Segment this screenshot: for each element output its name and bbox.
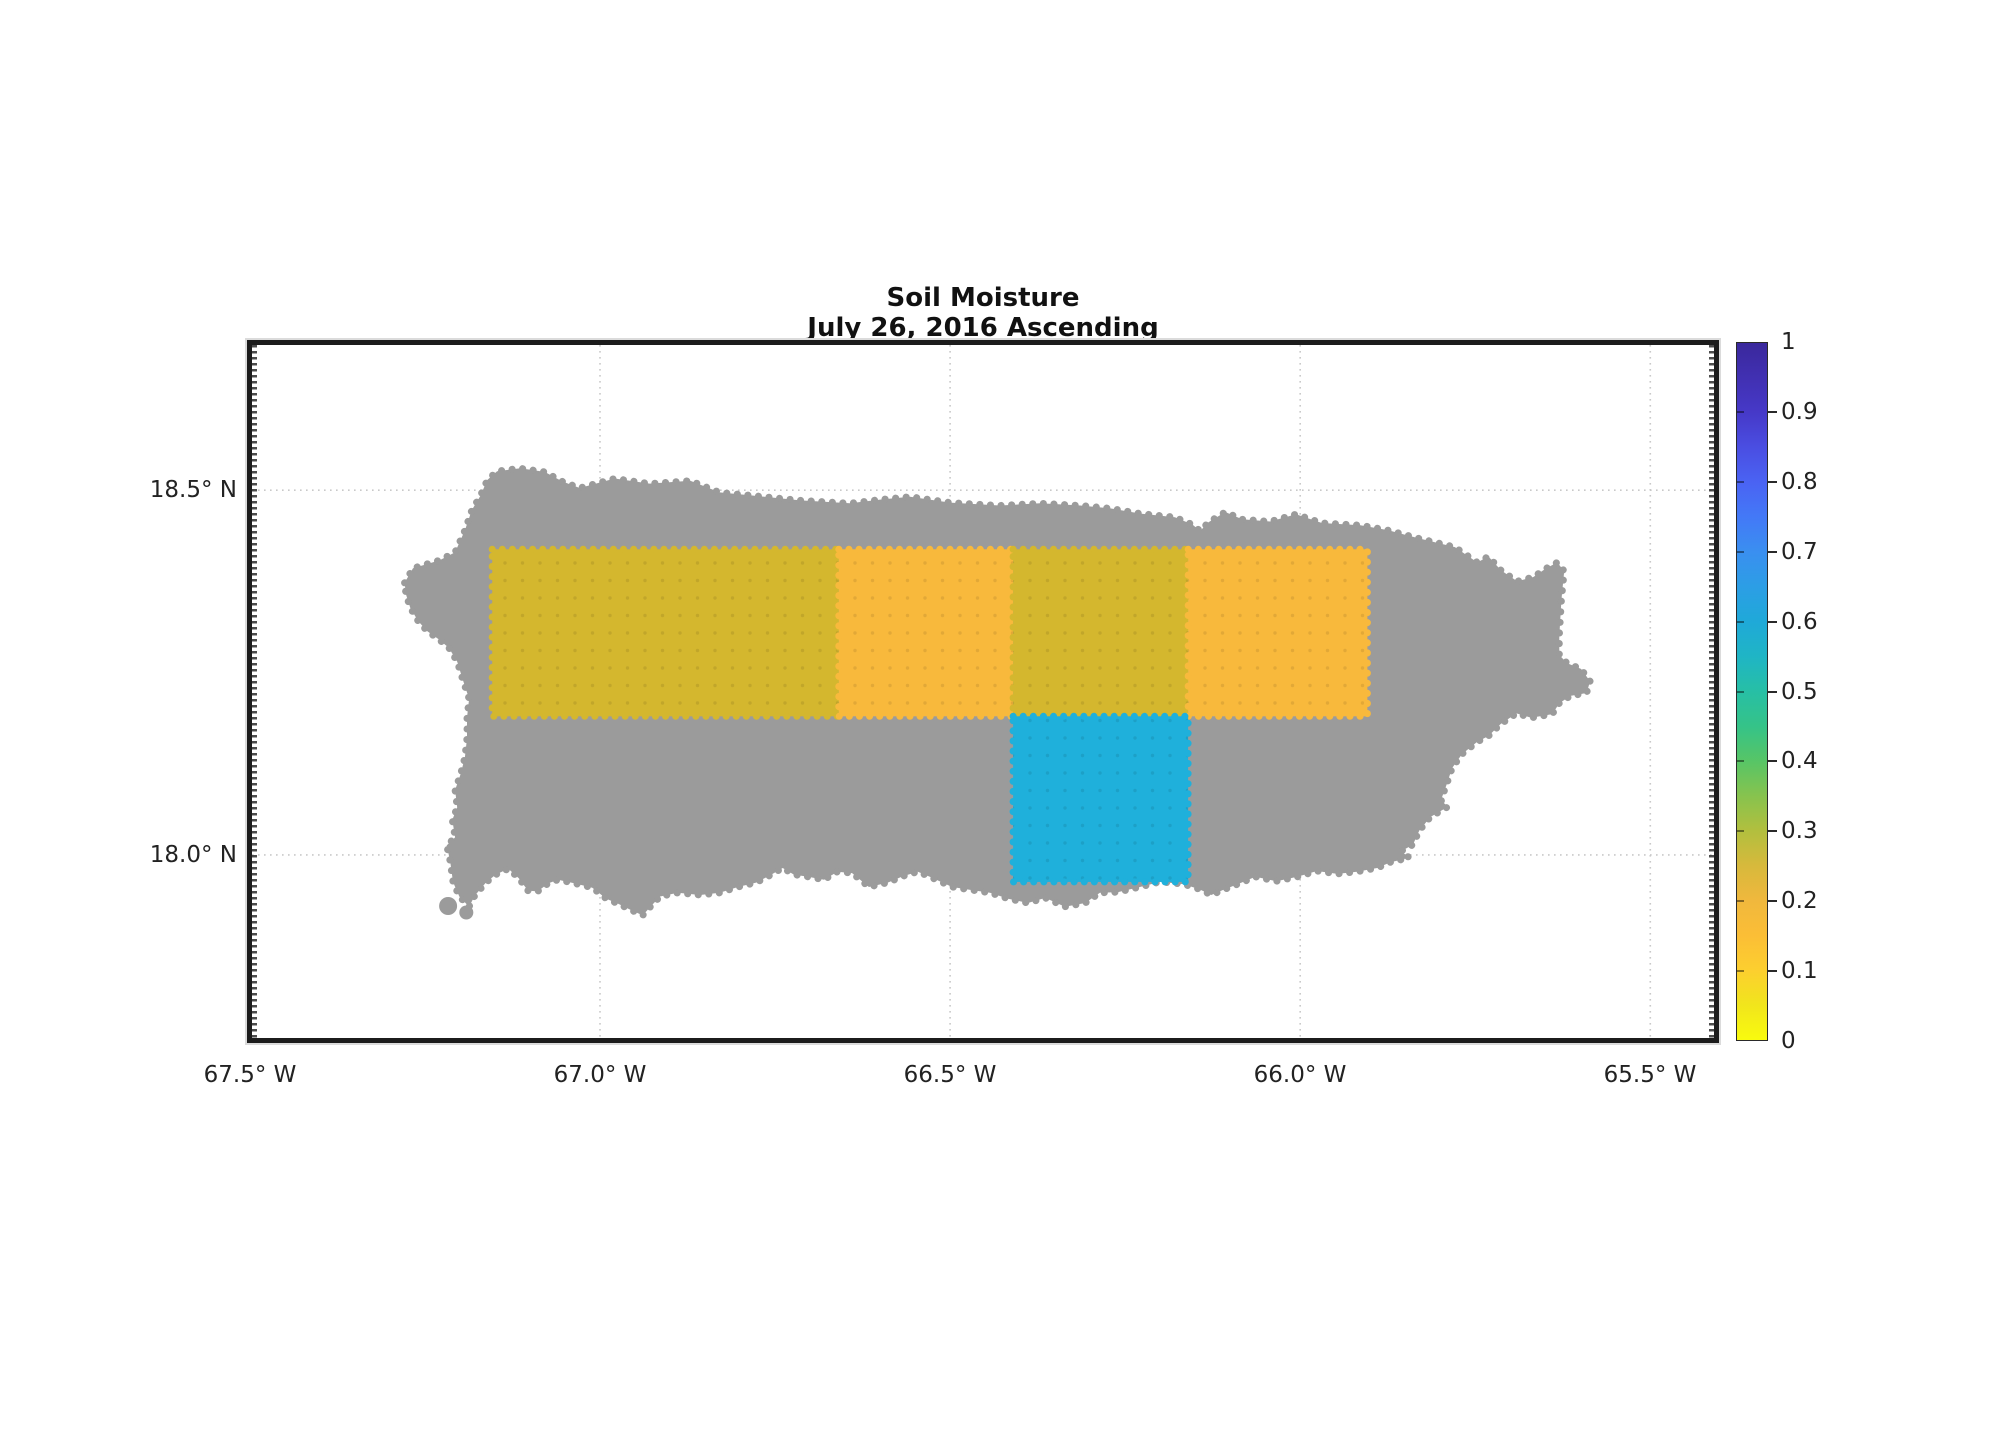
colorbar-tick-mark-inner (1737, 900, 1744, 902)
cell-dot-texture (1013, 549, 1188, 716)
colorbar-tick-label: 0.9 (1781, 399, 1818, 425)
axis-minor-ticks-left (252, 345, 257, 1038)
colorbar-tick-mark (1768, 621, 1777, 623)
colorbar-tick-label: 0.2 (1781, 888, 1818, 914)
soil-moisture-figure: Soil Moisture July 26, 2016 Ascending 67… (0, 0, 1991, 1433)
islet (459, 906, 473, 920)
colorbar-tick-mark-inner (1737, 621, 1744, 623)
colorbar-tick-mark-inner (1737, 970, 1744, 972)
colorbar-tick-label: 0.1 (1781, 958, 1818, 984)
cell-dot-texture (1188, 549, 1367, 716)
colorbar-tick-mark-inner (1737, 411, 1744, 413)
y-tick-label: 18.5° N (37, 474, 237, 506)
colorbar-tick-label: 0.6 (1781, 609, 1818, 635)
x-tick-label: 67.0° W (554, 1062, 647, 1088)
y-tick-label: 18.0° N (37, 839, 237, 871)
colorbar-tick-mark (1768, 830, 1777, 832)
x-tick-label: 66.0° W (1254, 1062, 1347, 1088)
islet (439, 897, 457, 915)
colorbar-tick-label: 0.8 (1781, 469, 1818, 495)
colorbar-tick-mark (1768, 970, 1777, 972)
chart-title: Soil Moisture July 26, 2016 Ascending (250, 283, 1716, 343)
cell-dot-texture (839, 549, 1013, 716)
colorbar-tick-label: 0.7 (1781, 539, 1818, 565)
x-tick-label: 65.5° W (1604, 1062, 1697, 1088)
cell-dot-texture (492, 549, 839, 716)
colorbar-tick-mark (1768, 411, 1777, 413)
chart-title-line2: July 26, 2016 Ascending (250, 313, 1716, 343)
colorbar-tick-mark (1768, 481, 1777, 483)
colorbar-tick-mark-inner (1737, 551, 1744, 553)
colorbar-tick-label: 1 (1781, 329, 1796, 355)
colorbar-tick-mark-inner (1737, 830, 1744, 832)
cell-dot-texture (1013, 716, 1188, 882)
colorbar-tick-label: 0.3 (1781, 818, 1818, 844)
colorbar-tick-mark-inner (1737, 691, 1744, 693)
colorbar-tick-label: 0 (1781, 1028, 1796, 1054)
chart-title-line1: Soil Moisture (250, 283, 1716, 313)
axis-minor-ticks-right (1709, 345, 1714, 1038)
x-tick-label: 67.5° W (204, 1062, 297, 1088)
x-tick-label: 66.5° W (904, 1062, 997, 1088)
colorbar-tick-mark (1768, 551, 1777, 553)
colorbar-tick-label: 0.4 (1781, 748, 1818, 774)
colorbar-tick-mark-inner (1737, 481, 1744, 483)
map-canvas (252, 345, 1714, 1038)
colorbar-tick-mark-inner (1737, 760, 1744, 762)
colorbar-tick-mark (1768, 760, 1777, 762)
colorbar-tick-mark (1768, 691, 1777, 693)
colorbar-tick-mark (1768, 900, 1777, 902)
colorbar-tick-label: 0.5 (1781, 679, 1818, 705)
